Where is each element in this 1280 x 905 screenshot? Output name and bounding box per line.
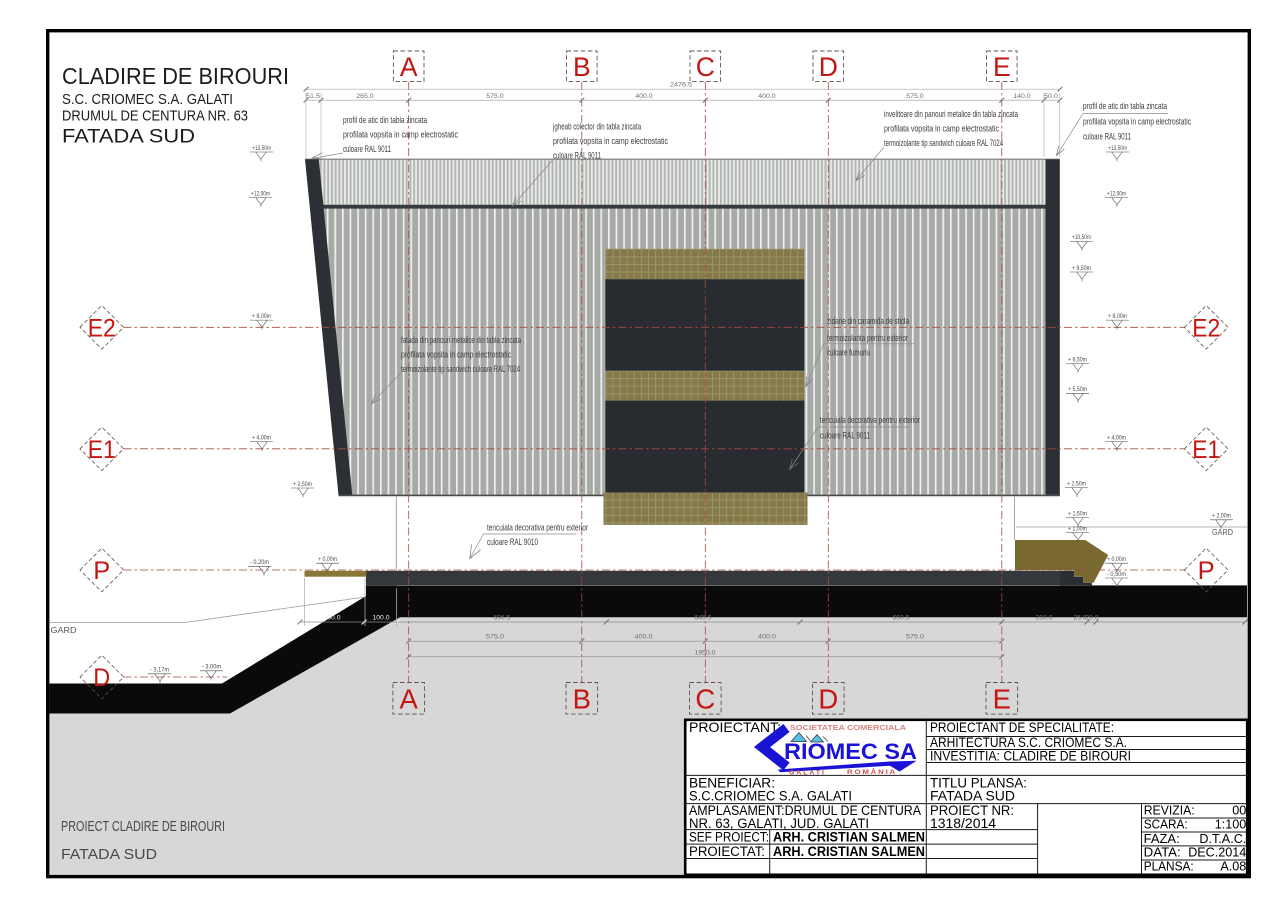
svg-text:575.0: 575.0 [486,93,504,100]
svg-text:profilata vopsita in camp elec: profilata vopsita in camp electrostatic [401,349,511,359]
svg-text:+12,00m: +12,00m [251,190,270,197]
svg-text:+ 6,50m: + 6,50m [1068,356,1087,363]
svg-text:E: E [993,684,1011,715]
svg-text:termoizolanta pentru exterior: termoizolanta pentru exterior [827,333,908,343]
svg-text:575.0: 575.0 [906,634,925,641]
svg-text:+ 4,00m: + 4,00m [252,434,271,441]
svg-text:E2: E2 [88,314,116,342]
svg-text:+ 1,00m: + 1,00m [1068,525,1087,532]
svg-text:P: P [93,557,110,585]
svg-text:C: C [696,52,715,82]
svg-text:culoare fumuriu: culoare fumuriu [827,348,870,358]
svg-text:1:100: 1:100 [1215,818,1247,832]
svg-text:PROIECTAT:: PROIECTAT: [689,844,765,859]
svg-text:51.5: 51.5 [306,93,320,100]
svg-text:CLADIRE DE BIROURI: CLADIRE DE BIROURI [62,63,289,89]
svg-text:+ 0,00m: + 0,00m [1107,556,1126,563]
svg-text:+ 9,50m: + 9,50m [1072,265,1091,272]
svg-text:200.0: 200.0 [1036,616,1054,622]
svg-text:660.5: 660.5 [893,616,911,622]
svg-text:+ 0,00m: + 0,00m [318,556,337,563]
svg-text:ROMÂNIA: ROMÂNIA [847,767,897,776]
svg-text:INVESTITIA: CLADIRE DE BIROURI: INVESTITIA: CLADIRE DE BIROURI [930,749,1131,764]
svg-text:+ 1,50m: + 1,50m [1068,510,1087,517]
svg-text:575.0: 575.0 [486,634,505,641]
svg-text:SCARA:: SCARA: [1144,818,1188,832]
svg-text:2476.5: 2476.5 [670,82,693,89]
svg-text:culoare RAL 9010: culoare RAL 9010 [487,537,538,548]
svg-text:termoizolante tip sandwich cul: termoizolante tip sandwich culoare RAL 7… [401,364,520,374]
svg-text:+ 5,50m: + 5,50m [1068,386,1087,393]
svg-text:PLANSA:: PLANSA: [1144,860,1194,874]
svg-text:D: D [819,52,838,82]
svg-text:696.5: 696.5 [494,616,512,622]
svg-text:profilata vopsita in camp elec: profilata vopsita in camp electrostatic [884,123,999,133]
svg-text:400.0: 400.0 [635,93,653,100]
svg-text:E: E [993,52,1011,82]
svg-text:PROIECTANT:: PROIECTANT: [689,720,781,735]
svg-text:50.0: 50.0 [1044,93,1058,100]
svg-text:200.0: 200.0 [324,616,342,622]
svg-text:profil de atic din tabla zinca: profil de atic din tabla zincata [343,115,428,125]
svg-text:140.0: 140.0 [1013,93,1031,100]
svg-text:GALATI: GALATI [789,770,826,777]
svg-text:PROIECT CLADIRE DE BIROURI: PROIECT CLADIRE DE BIROURI [61,819,225,835]
svg-text:+ 2,50m: + 2,50m [1067,480,1086,487]
svg-text:profilata vopsita in camp elec: profilata vopsita in camp electrostatic [553,136,668,146]
svg-text:A: A [400,684,419,715]
svg-text:ARH. CRISTIAN SALMEN: ARH. CRISTIAN SALMEN [773,830,925,845]
svg-text:20.0: 20.0 [1086,616,1100,622]
svg-text:265.0: 265.0 [356,93,374,100]
svg-text:profil de atic din tabla zinca: profil de atic din tabla zincata [1083,101,1168,111]
svg-text:DEC.2014: DEC.2014 [1188,846,1246,860]
svg-text:RIOMEC SA: RIOMEC SA [784,739,917,764]
svg-text:00: 00 [1232,804,1246,818]
svg-text:- 0,50m: - 0,50m [1107,571,1126,578]
svg-text:culoare RAL 9011: culoare RAL 9011 [1083,131,1131,141]
svg-text:jgheab colector din tabla zinc: jgheab colector din tabla zincata [552,122,641,132]
svg-text:+ 4,00m: + 4,00m [1107,434,1126,441]
svg-text:- 3,17m: - 3,17m [150,667,169,674]
svg-text:FATADA SUD: FATADA SUD [62,126,195,148]
svg-text:DATA:: DATA: [1144,846,1181,860]
svg-text:- 3,00m: - 3,00m [202,664,221,671]
svg-text:B: B [573,684,591,715]
svg-text:culoare RAL 9011: culoare RAL 9011 [553,150,601,160]
svg-text:B: B [573,52,591,82]
svg-text:- 0,20m: - 0,20m [250,559,269,566]
svg-text:+ 2,50m: + 2,50m [293,481,312,488]
svg-text:A.08: A.08 [1220,860,1246,874]
svg-text:+13,50m: +13,50m [1108,145,1127,152]
svg-text:D: D [93,664,110,692]
svg-text:ARH. CRISTIAN SALMEN: ARH. CRISTIAN SALMEN [773,844,925,859]
svg-text:GARD: GARD [51,625,77,635]
svg-text:tencuiala decorativa pentru ex: tencuiala decorativa pentru exterior [820,415,920,425]
svg-text:575.0: 575.0 [906,93,924,100]
svg-text:S.C. CRIOMEC S.A. GALATI: S.C. CRIOMEC S.A. GALATI [62,91,233,108]
svg-text:fatada din panouri metalice di: fatada din panouri metalice din tabla zi… [401,335,522,345]
svg-text:1950.0: 1950.0 [695,649,717,656]
svg-text:profilata vopsita in camp elec: profilata vopsita in camp electrostatic [343,129,458,139]
svg-text:culoare RAL 9011: culoare RAL 9011 [820,431,870,441]
svg-text:FAZA:: FAZA: [1144,832,1180,846]
svg-text:1318/2014: 1318/2014 [930,816,997,831]
svg-text:+12,00m: +12,00m [1107,190,1126,197]
svg-text:+10,50m: +10,50m [1072,234,1091,241]
svg-text:400.0: 400.0 [635,634,654,641]
svg-text:400.0: 400.0 [758,634,777,641]
svg-text:zidarie din caramida de sticla: zidarie din caramida de sticla [827,316,910,326]
svg-text:termoizolante tip sandwich cul: termoizolante tip sandwich culoare RAL 7… [884,138,1003,148]
svg-text:invelitoare din panouri metali: invelitoare din panouri metalice din tab… [884,109,1019,119]
svg-text:tencuiala decorativa pentru ex: tencuiala decorativa pentru exterior [487,523,588,534]
svg-text:SEF PROIECT:: SEF PROIECT: [689,830,769,845]
svg-text:D: D [818,684,838,715]
svg-text:+ 8,00m: + 8,00m [252,313,271,320]
svg-text:profilata vopsita in camp elec: profilata vopsita in camp electrostatic [1083,116,1191,126]
svg-text:+13,50m: +13,50m [252,145,271,152]
svg-text:D.T.A.C.: D.T.A.C. [1199,832,1246,846]
svg-text:E1: E1 [88,436,116,464]
svg-text:SOCIETATEA COMERCIALA: SOCIETATEA COMERCIALA [790,723,907,732]
svg-text:GARD: GARD [1212,527,1233,537]
svg-text:E2: E2 [1192,314,1220,342]
svg-text:PROIECTANT DE SPECIALITATE:: PROIECTANT DE SPECIALITATE: [930,720,1114,735]
svg-text:400.0: 400.0 [758,93,776,100]
svg-text:C: C [695,684,715,715]
svg-text:645.5: 645.5 [695,616,713,622]
svg-text:A: A [400,52,418,82]
svg-text:E1: E1 [1192,436,1220,464]
svg-text:100.0: 100.0 [373,616,391,622]
svg-text:REVIZIA:: REVIZIA: [1144,804,1195,818]
svg-text:S.C.CRIOMEC S.A. GALATI: S.C.CRIOMEC S.A. GALATI [689,789,852,804]
svg-text:P: P [1198,557,1215,585]
svg-text:DRUMUL DE CENTURA NR. 63: DRUMUL DE CENTURA NR. 63 [62,108,248,125]
svg-text:+ 2,00m: + 2,00m [1212,513,1231,520]
svg-text:FATADA SUD: FATADA SUD [930,789,1015,804]
svg-text:FATADA SUD: FATADA SUD [61,847,157,863]
svg-text:culoare RAL 9011: culoare RAL 9011 [343,144,391,154]
svg-text:+ 8,00m: + 8,00m [1108,313,1127,320]
